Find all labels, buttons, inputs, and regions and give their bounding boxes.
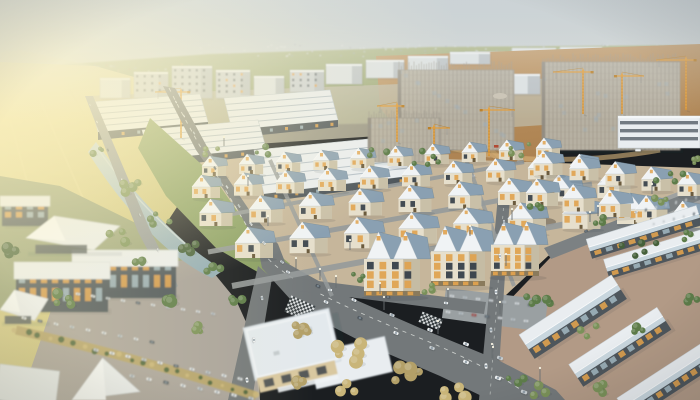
aerial-scene-canvas — [0, 0, 700, 400]
vignette — [0, 0, 700, 400]
aerial-photo — [0, 0, 700, 400]
light-overlays — [0, 0, 700, 400]
